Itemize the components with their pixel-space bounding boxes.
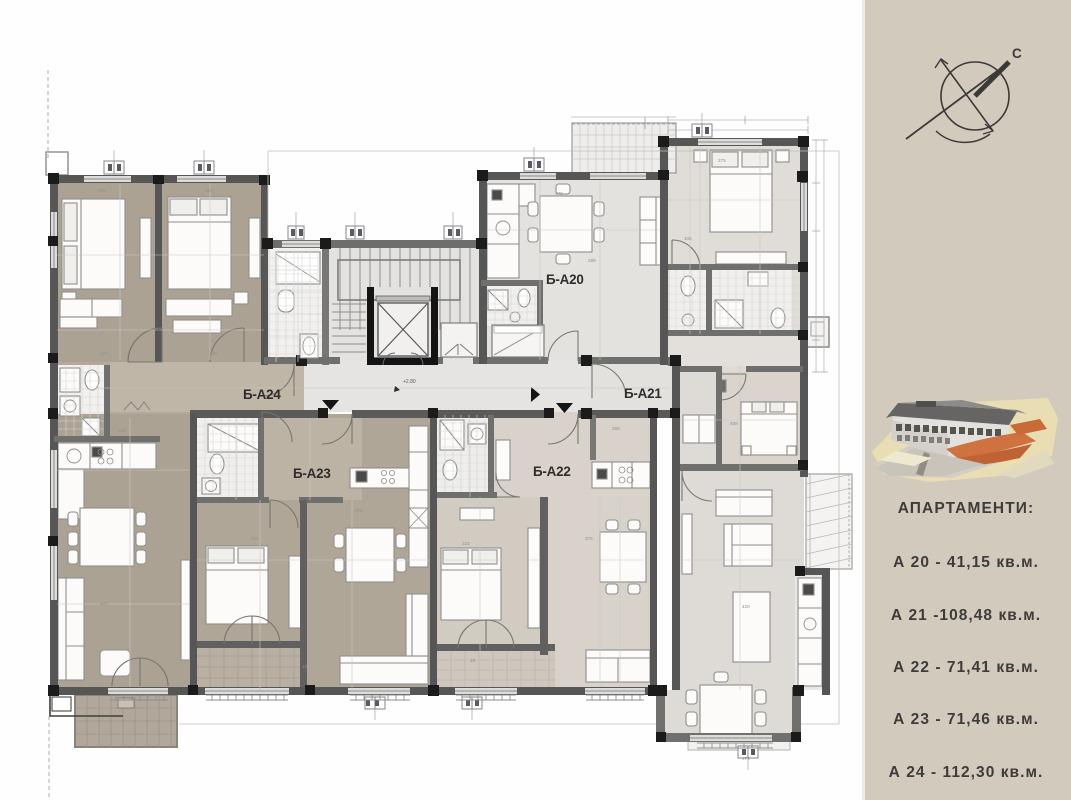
svg-text:18: 18 xyxy=(302,664,308,669)
svg-text:А 23 - 71,46 кв.м.: А 23 - 71,46 кв.м. xyxy=(893,711,1039,728)
svg-text:420: 420 xyxy=(100,601,108,606)
svg-text:Б-А23: Б-А23 xyxy=(293,466,331,481)
svg-text:475: 475 xyxy=(742,756,750,761)
svg-text:А 21 -108,48 кв.м.: А 21 -108,48 кв.м. xyxy=(891,607,1041,624)
svg-text:Б-А22: Б-А22 xyxy=(533,464,571,479)
svg-text:Б-А20: Б-А20 xyxy=(546,272,584,287)
svg-text:А 24 - 112,30 кв.м.: А 24 - 112,30 кв.м. xyxy=(889,764,1044,781)
svg-text:18: 18 xyxy=(470,658,476,663)
svg-text:А 20 - 41,15 кв.м.: А 20 - 41,15 кв.м. xyxy=(893,554,1039,571)
svg-text:423: 423 xyxy=(100,351,108,356)
svg-text:375: 375 xyxy=(98,188,106,193)
svg-text:325: 325 xyxy=(250,536,258,541)
svg-text:350: 350 xyxy=(205,188,213,193)
svg-text:408: 408 xyxy=(730,421,738,426)
svg-text:298: 298 xyxy=(612,426,620,431)
svg-text:+2.80: +2.80 xyxy=(403,379,416,385)
svg-text:262: 262 xyxy=(118,428,126,433)
svg-text:А 22 - 71,41 кв.м.: А 22 - 71,41 кв.м. xyxy=(893,659,1039,676)
svg-text:370: 370 xyxy=(555,191,563,196)
svg-text:C: C xyxy=(1012,46,1022,61)
svg-text:298: 298 xyxy=(588,258,596,263)
svg-text:375: 375 xyxy=(585,536,593,541)
svg-text:323: 323 xyxy=(462,541,470,546)
svg-text:420: 420 xyxy=(742,604,750,609)
svg-text:Б-А24: Б-А24 xyxy=(243,387,281,402)
svg-text:375: 375 xyxy=(718,158,726,163)
svg-text:Б-А21: Б-А21 xyxy=(624,386,662,401)
svg-text:105: 105 xyxy=(684,236,692,241)
svg-text:АПАРТАМЕНТИ:: АПАРТАМЕНТИ: xyxy=(898,500,1035,517)
svg-text:375: 375 xyxy=(355,508,363,513)
svg-text:380: 380 xyxy=(210,351,218,356)
svg-text:18: 18 xyxy=(128,696,134,701)
